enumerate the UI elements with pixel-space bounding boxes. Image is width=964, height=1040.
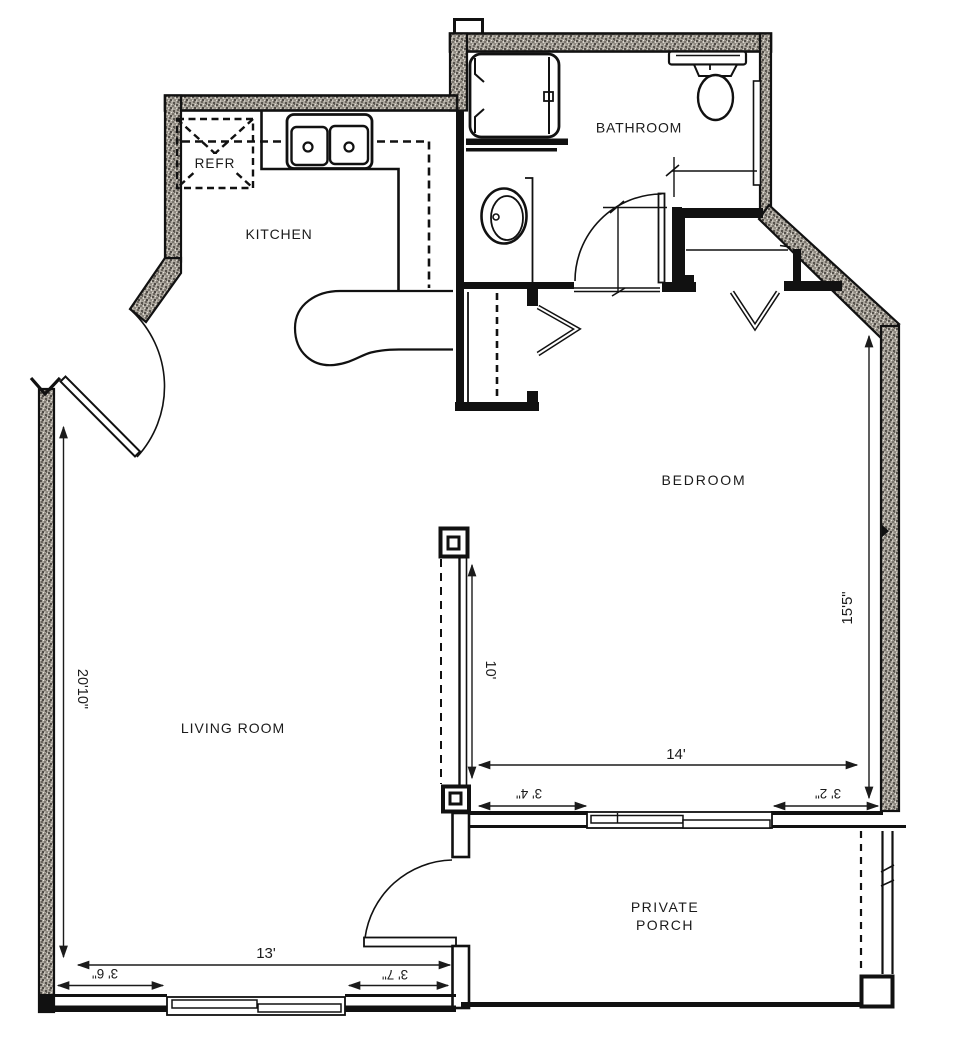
svg-text:14': 14' — [666, 746, 686, 763]
svg-text:10': 10' — [482, 661, 498, 680]
svg-text:PORCH: PORCH — [636, 917, 694, 933]
svg-text:BEDROOM: BEDROOM — [662, 472, 747, 488]
svg-text:15'5": 15'5" — [839, 591, 856, 624]
svg-text:20'10": 20'10" — [74, 669, 90, 709]
svg-text:KITCHEN: KITCHEN — [245, 226, 312, 242]
svg-text:3' 7": 3' 7" — [382, 967, 408, 982]
svg-text:LIVING ROOM: LIVING ROOM — [181, 720, 285, 736]
svg-text:BATHROOM: BATHROOM — [596, 120, 682, 136]
svg-text:PRIVATE: PRIVATE — [631, 899, 699, 915]
svg-text:3' 6": 3' 6" — [92, 966, 118, 981]
svg-text:3' 4": 3' 4" — [516, 786, 542, 801]
svg-text:3' 2": 3' 2" — [815, 786, 841, 801]
svg-text:13': 13' — [256, 945, 276, 962]
svg-text:REFR: REFR — [195, 156, 236, 171]
